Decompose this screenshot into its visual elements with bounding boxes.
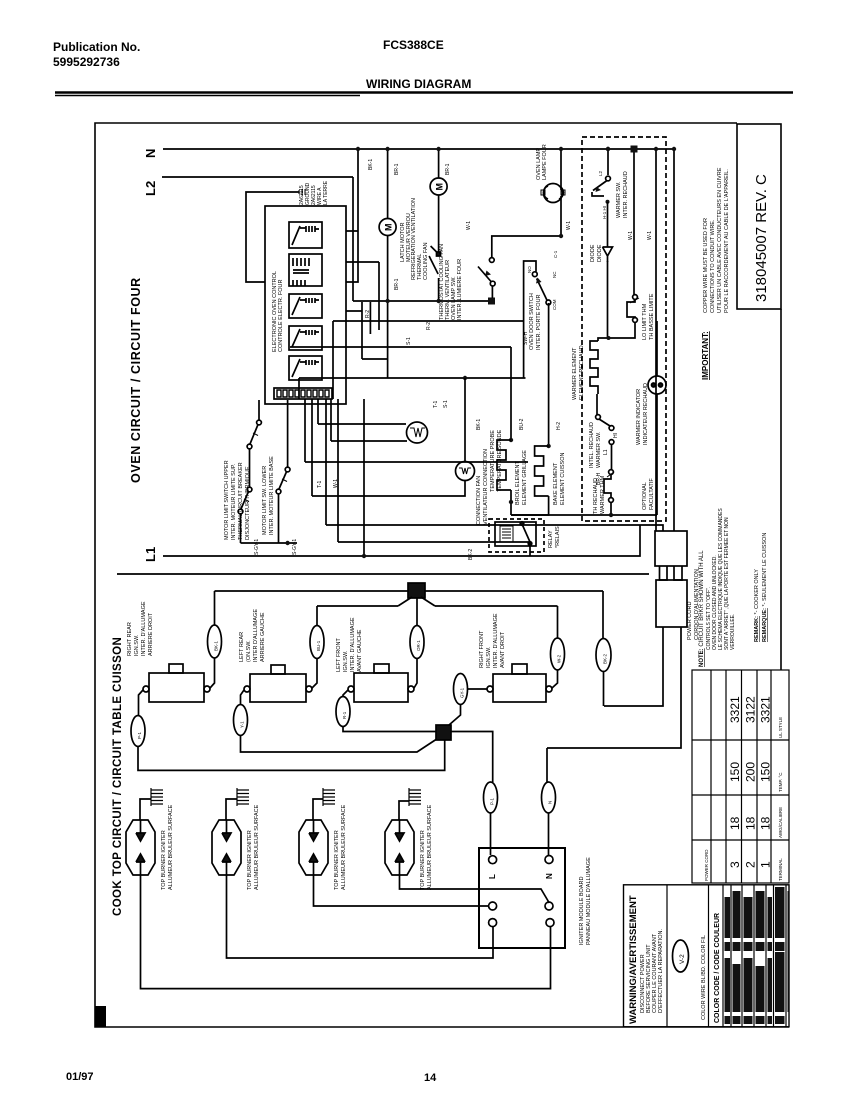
svg-text:INTER. MOTEUR LIMITE SUP.: INTER. MOTEUR LIMITE SUP. bbox=[231, 463, 237, 540]
svg-text:BK-2: BK-2 bbox=[468, 549, 474, 560]
svg-text:WARMER ELEMENT: WARMER ELEMENT bbox=[572, 347, 578, 400]
svg-text:*RELAIS: *RELAIS bbox=[555, 526, 561, 548]
svg-text:HI: HI bbox=[613, 433, 619, 438]
svg-text:BK-1: BK-1 bbox=[214, 640, 219, 651]
svg-text:OR-1: OR-1 bbox=[416, 640, 421, 651]
svg-text:AVANT GAUCHE: AVANT GAUCHE bbox=[357, 629, 363, 672]
svg-text:TOP BURNER IGNITER: TOP BURNER IGNITER bbox=[334, 830, 340, 890]
svg-text:L2: L2 bbox=[598, 170, 603, 176]
svg-text:(ON.SW.: (ON.SW. bbox=[246, 640, 252, 662]
svg-text:BROIL ELEMENT: BROIL ELEMENT bbox=[515, 461, 521, 505]
svg-text:BK-2: BK-2 bbox=[603, 653, 608, 664]
svg-text:REMARK: *- COOKER ONLY: REMARK: *- COOKER ONLY bbox=[754, 569, 760, 642]
svg-text:DISJONCTEUR THERMIQUE: DISJONCTEUR THERMIQUE bbox=[245, 466, 251, 540]
svg-text:MOTOR LIMIT SW. LOWER: MOTOR LIMIT SW. LOWER bbox=[262, 466, 268, 535]
svg-text:FACULTATIF: FACULTATIF bbox=[649, 478, 655, 510]
svg-text:SW-H: SW-H bbox=[523, 331, 529, 345]
svg-text:R-2: R-2 bbox=[365, 310, 371, 318]
svg-text:IGN.SW.: IGN.SW. bbox=[134, 634, 140, 656]
svg-text:5995292736: 5995292736 bbox=[53, 55, 120, 69]
svg-text:N: N bbox=[545, 873, 554, 879]
svg-text:BU-1: BU-1 bbox=[316, 640, 321, 651]
svg-text:IGN.SW.: IGN.SW. bbox=[486, 646, 492, 668]
svg-text:ELEMENT RECHAUD: ELEMENT RECHAUD bbox=[579, 345, 585, 400]
svg-text:W-1: W-1 bbox=[566, 221, 572, 230]
svg-text:W-1: W-1 bbox=[628, 231, 634, 240]
svg-text:IMPORTANT:: IMPORTANT: bbox=[701, 331, 710, 380]
svg-text:INTEL. RECHAUD: INTEL. RECHAUD bbox=[589, 422, 595, 468]
svg-text:W-1: W-1 bbox=[466, 221, 472, 230]
svg-text:AWG/CALIBRE: AWG/CALIBRE bbox=[778, 807, 783, 838]
svg-text:POWER CORD: POWER CORD bbox=[704, 849, 709, 881]
svg-text:RIGHT REAR: RIGHT REAR bbox=[127, 622, 133, 656]
svg-text:N: N bbox=[548, 801, 553, 804]
svg-text:200: 200 bbox=[744, 762, 758, 782]
svg-text:Y-1: Y-1 bbox=[240, 721, 245, 728]
svg-text:M: M bbox=[384, 224, 394, 232]
svg-text:IGNITER MODULE BOARD: IGNITER MODULE BOARD bbox=[579, 877, 585, 945]
svg-text:M: M bbox=[435, 183, 445, 191]
svg-text:LEFT REAR: LEFT REAR bbox=[239, 632, 245, 662]
svg-text:W-1: W-1 bbox=[647, 231, 653, 240]
svg-text:LAMPE FOUR: LAMPE FOUR bbox=[542, 144, 548, 180]
svg-text:ELEMENT CUISSON: ELEMENT CUISSON bbox=[560, 453, 566, 505]
svg-text:BK-1: BK-1 bbox=[368, 159, 374, 170]
svg-text:3321: 3321 bbox=[759, 696, 773, 723]
svg-text:LA TERRE: LA TERRE bbox=[323, 180, 329, 205]
svg-text:COLOR WIRE BL/BD. COLOR FIL: COLOR WIRE BL/BD. COLOR FIL bbox=[701, 935, 707, 1020]
svg-text:ALLUMEUR BRULEUR SURFACE: ALLUMEUR BRULEUR SURFACE bbox=[341, 804, 347, 890]
svg-text:CORDON D'ALIMENTATION: CORDON D'ALIMENTATION bbox=[694, 569, 700, 640]
svg-text:Publication No.: Publication No. bbox=[53, 40, 140, 54]
svg-text:CONNECTION FAN: CONNECTION FAN bbox=[476, 476, 482, 525]
svg-text:ELEMENT GRILLAGE: ELEMENT GRILLAGE bbox=[522, 450, 528, 505]
svg-text:3122: 3122 bbox=[744, 696, 758, 723]
svg-text:TOP BURNER IGNITER: TOP BURNER IGNITER bbox=[247, 830, 253, 890]
svg-text:CONTROLE ELECTR. FOUR: CONTROLE ELECTR. FOUR bbox=[278, 280, 284, 352]
svg-text:NC: NC bbox=[552, 271, 557, 278]
svg-text:GY-1: GY-1 bbox=[460, 687, 465, 698]
svg-text:INDICATEUR RECHAUD: INDICATEUR RECHAUD bbox=[643, 383, 649, 445]
svg-text:18: 18 bbox=[759, 816, 773, 830]
svg-text:INTER. D'ALLUMAGE: INTER. D'ALLUMAGE bbox=[493, 613, 499, 668]
svg-text:L2: L2 bbox=[143, 181, 158, 196]
svg-text:COLOR CODE / CODE COULEUR: COLOR CODE / CODE COULEUR bbox=[714, 913, 721, 1023]
svg-text:LEFT FRONT: LEFT FRONT bbox=[336, 638, 342, 672]
svg-text:ALLUMEUR BRULEUR SURFACE: ALLUMEUR BRULEUR SURFACE bbox=[427, 804, 433, 890]
svg-text:1: 1 bbox=[759, 861, 773, 868]
svg-text:UL STYLE: UL STYLE bbox=[778, 717, 783, 738]
svg-text:PANNEAU MODULE D'ALLUMAGE: PANNEAU MODULE D'ALLUMAGE bbox=[586, 857, 592, 945]
svg-text:L: L bbox=[488, 874, 497, 879]
svg-text:INTER. D'ALLUMAGE: INTER. D'ALLUMAGE bbox=[350, 617, 356, 672]
svg-text:D'EFFECTUER LA REPARATION.: D'EFFECTUER LA REPARATION. bbox=[658, 929, 664, 1013]
svg-text:REMARQUE: *- SEULEMENT LE CUI: REMARQUE: *- SEULEMENT LE CUISSON bbox=[762, 533, 768, 642]
svg-text:14: 14 bbox=[424, 1072, 437, 1084]
svg-text:INTER. PORTE FOUR: INTER. PORTE FOUR bbox=[536, 294, 542, 350]
svg-text:BR-H: BR-H bbox=[596, 472, 602, 485]
svg-text:ARRIERE GAUCHE: ARRIERE GAUCHE bbox=[260, 612, 266, 662]
svg-text:COPPER WIRE MUST BE USED FOR: COPPER WIRE MUST BE USED FOR bbox=[703, 218, 709, 313]
svg-text:3321: 3321 bbox=[728, 696, 742, 723]
svg-text:N: N bbox=[143, 149, 158, 158]
svg-text:RELAY: RELAY bbox=[548, 530, 554, 548]
svg-text:UTILISER UN CABLE AVEC CONDUCT: UTILISER UN CABLE AVEC CONDUCTEURS EN CU… bbox=[717, 167, 723, 313]
svg-text:R-1: R-1 bbox=[342, 711, 347, 719]
svg-text:OPTIONAL: OPTIONAL bbox=[642, 482, 648, 510]
svg-text:WARMER INDICATOR: WARMER INDICATOR bbox=[636, 389, 642, 445]
svg-text:2: 2 bbox=[744, 861, 758, 868]
svg-text:TH BASSE LIMITE: TH BASSE LIMITE bbox=[649, 293, 655, 340]
svg-text:BU-2: BU-2 bbox=[519, 418, 525, 430]
svg-text:TERMINAL: TERMINAL bbox=[778, 858, 783, 881]
svg-text:DIODE: DIODE bbox=[590, 244, 596, 262]
svg-text:INTER. RECHAUD: INTER. RECHAUD bbox=[623, 171, 629, 218]
svg-text:COOK TOP CIRCUIT / CIRCUIT TAB: COOK TOP CIRCUIT / CIRCUIT TABLE CUISSON bbox=[112, 637, 124, 916]
svg-text:150: 150 bbox=[759, 762, 773, 782]
svg-text:ARRIERE DROIT: ARRIERE DROIT bbox=[148, 612, 154, 656]
svg-text:TOP BURNER IGNITER: TOP BURNER IGNITER bbox=[161, 830, 167, 890]
svg-text:W-1: W-1 bbox=[333, 479, 339, 488]
svg-text:VENTILATEUR CONNECTION: VENTILATEUR CONNECTION bbox=[483, 449, 489, 525]
svg-text:POWER CORD: POWER CORD bbox=[687, 601, 693, 640]
svg-text:18: 18 bbox=[744, 816, 758, 830]
svg-text:S-GY-1: S-GY-1 bbox=[292, 539, 298, 555]
svg-text:V-2: V-2 bbox=[679, 954, 686, 964]
svg-text:COM: COM bbox=[552, 299, 557, 310]
svg-text:CONNECTIONS TO CONDUIT WIRE.: CONNECTIONS TO CONDUIT WIRE. bbox=[710, 219, 716, 313]
svg-text:L1: L1 bbox=[603, 449, 609, 455]
svg-text:DIODE: DIODE bbox=[597, 244, 603, 262]
svg-text:S-1: S-1 bbox=[406, 337, 412, 345]
svg-text:FCS388CE: FCS388CE bbox=[383, 38, 444, 52]
svg-text:INTER. LUMIERE FOUR: INTER. LUMIERE FOUR bbox=[457, 259, 463, 320]
svg-text:L1: L1 bbox=[143, 547, 158, 562]
svg-text:OVEN DOOR SWITCH: OVEN DOOR SWITCH bbox=[529, 293, 535, 350]
svg-text:T-1: T-1 bbox=[433, 401, 439, 408]
svg-text:H-2: H-2 bbox=[556, 422, 562, 430]
svg-text:WARMER SW.: WARMER SW. bbox=[596, 431, 602, 468]
svg-text:WARNING/AVERTISSEMENT: WARNING/AVERTISSEMENT bbox=[628, 895, 639, 1024]
svg-text:H-1 HI: H-1 HI bbox=[602, 206, 607, 219]
svg-text:3: 3 bbox=[728, 861, 742, 868]
svg-text:LO LIMIT THM: LO LIMIT THM bbox=[642, 303, 648, 340]
svg-text:S-GY-1: S-GY-1 bbox=[254, 539, 260, 555]
svg-text:C-1: C-1 bbox=[553, 250, 558, 258]
svg-text:R-2: R-2 bbox=[426, 322, 432, 330]
svg-text:VERROUILLEE.: VERROUILLEE. bbox=[730, 614, 736, 650]
svg-text:P-1: P-1 bbox=[137, 732, 142, 740]
svg-text:COOLING FAN: COOLING FAN bbox=[423, 242, 429, 280]
svg-text:THERMAL CIRCUIT BREAKER: THERMAL CIRCUIT BREAKER bbox=[238, 462, 244, 540]
svg-text:18: 18 bbox=[728, 816, 742, 830]
svg-text:318045007 REV. C: 318045007 REV. C bbox=[753, 174, 770, 302]
svg-text:TEMP. °C: TEMP. °C bbox=[778, 772, 783, 792]
svg-text:IGN.SW.: IGN.SW. bbox=[343, 650, 349, 672]
svg-text:BR-1: BR-1 bbox=[445, 163, 451, 175]
svg-text:BR-1: BR-1 bbox=[394, 278, 400, 290]
svg-text:POUR LE RACCORDEMENT AU CABLE: POUR LE RACCORDEMENT AU CABLE DE L'APPAR… bbox=[724, 169, 730, 313]
svg-text:OVEN CIRCUIT / CIRCUIT FOUR: OVEN CIRCUIT / CIRCUIT FOUR bbox=[129, 277, 143, 483]
svg-text:BR-1: BR-1 bbox=[394, 163, 400, 175]
svg-text:01/97: 01/97 bbox=[66, 1071, 94, 1083]
svg-text:AVANT DROIT: AVANT DROIT bbox=[500, 631, 506, 668]
svg-text:150: 150 bbox=[728, 762, 742, 782]
svg-text:TEMPERATURE PROBE: TEMPERATURE PROBE bbox=[490, 430, 496, 492]
svg-text:INTER D'ALLUMAGE: INTER D'ALLUMAGE bbox=[253, 609, 259, 662]
svg-text:INTER. MOTEUR LIMITE BASE: INTER. MOTEUR LIMITE BASE bbox=[269, 456, 275, 535]
svg-text:TOP BURNER IGNITER: TOP BURNER IGNITER bbox=[420, 830, 426, 890]
svg-text:WARMER SW.: WARMER SW. bbox=[616, 181, 622, 218]
svg-text:W-2: W-2 bbox=[557, 654, 562, 663]
svg-text:BAKE ELEMENT: BAKE ELEMENT bbox=[553, 462, 559, 505]
svg-text:RIGHT FRONT: RIGHT FRONT bbox=[479, 630, 485, 668]
svg-text:P-1: P-1 bbox=[490, 798, 495, 806]
svg-text:T-1: T-1 bbox=[317, 481, 323, 488]
svg-text:ALLUMEUR BRULEUR SURFACE: ALLUMEUR BRULEUR SURFACE bbox=[168, 804, 174, 890]
svg-text:S-1: S-1 bbox=[443, 400, 449, 408]
svg-text:NO: NO bbox=[527, 266, 532, 273]
svg-text:MOTOR LIMIT SWITCH UPPER: MOTOR LIMIT SWITCH UPPER bbox=[224, 460, 230, 540]
svg-text:BK-1: BK-1 bbox=[476, 419, 482, 430]
svg-text:INTER. D'ALLUMAGE: INTER. D'ALLUMAGE bbox=[141, 601, 147, 656]
svg-text:WIRING DIAGRAM: WIRING DIAGRAM bbox=[366, 77, 471, 91]
svg-text:ALLUMEUR BRULEUR SURFACE: ALLUMEUR BRULEUR SURFACE bbox=[254, 804, 260, 890]
